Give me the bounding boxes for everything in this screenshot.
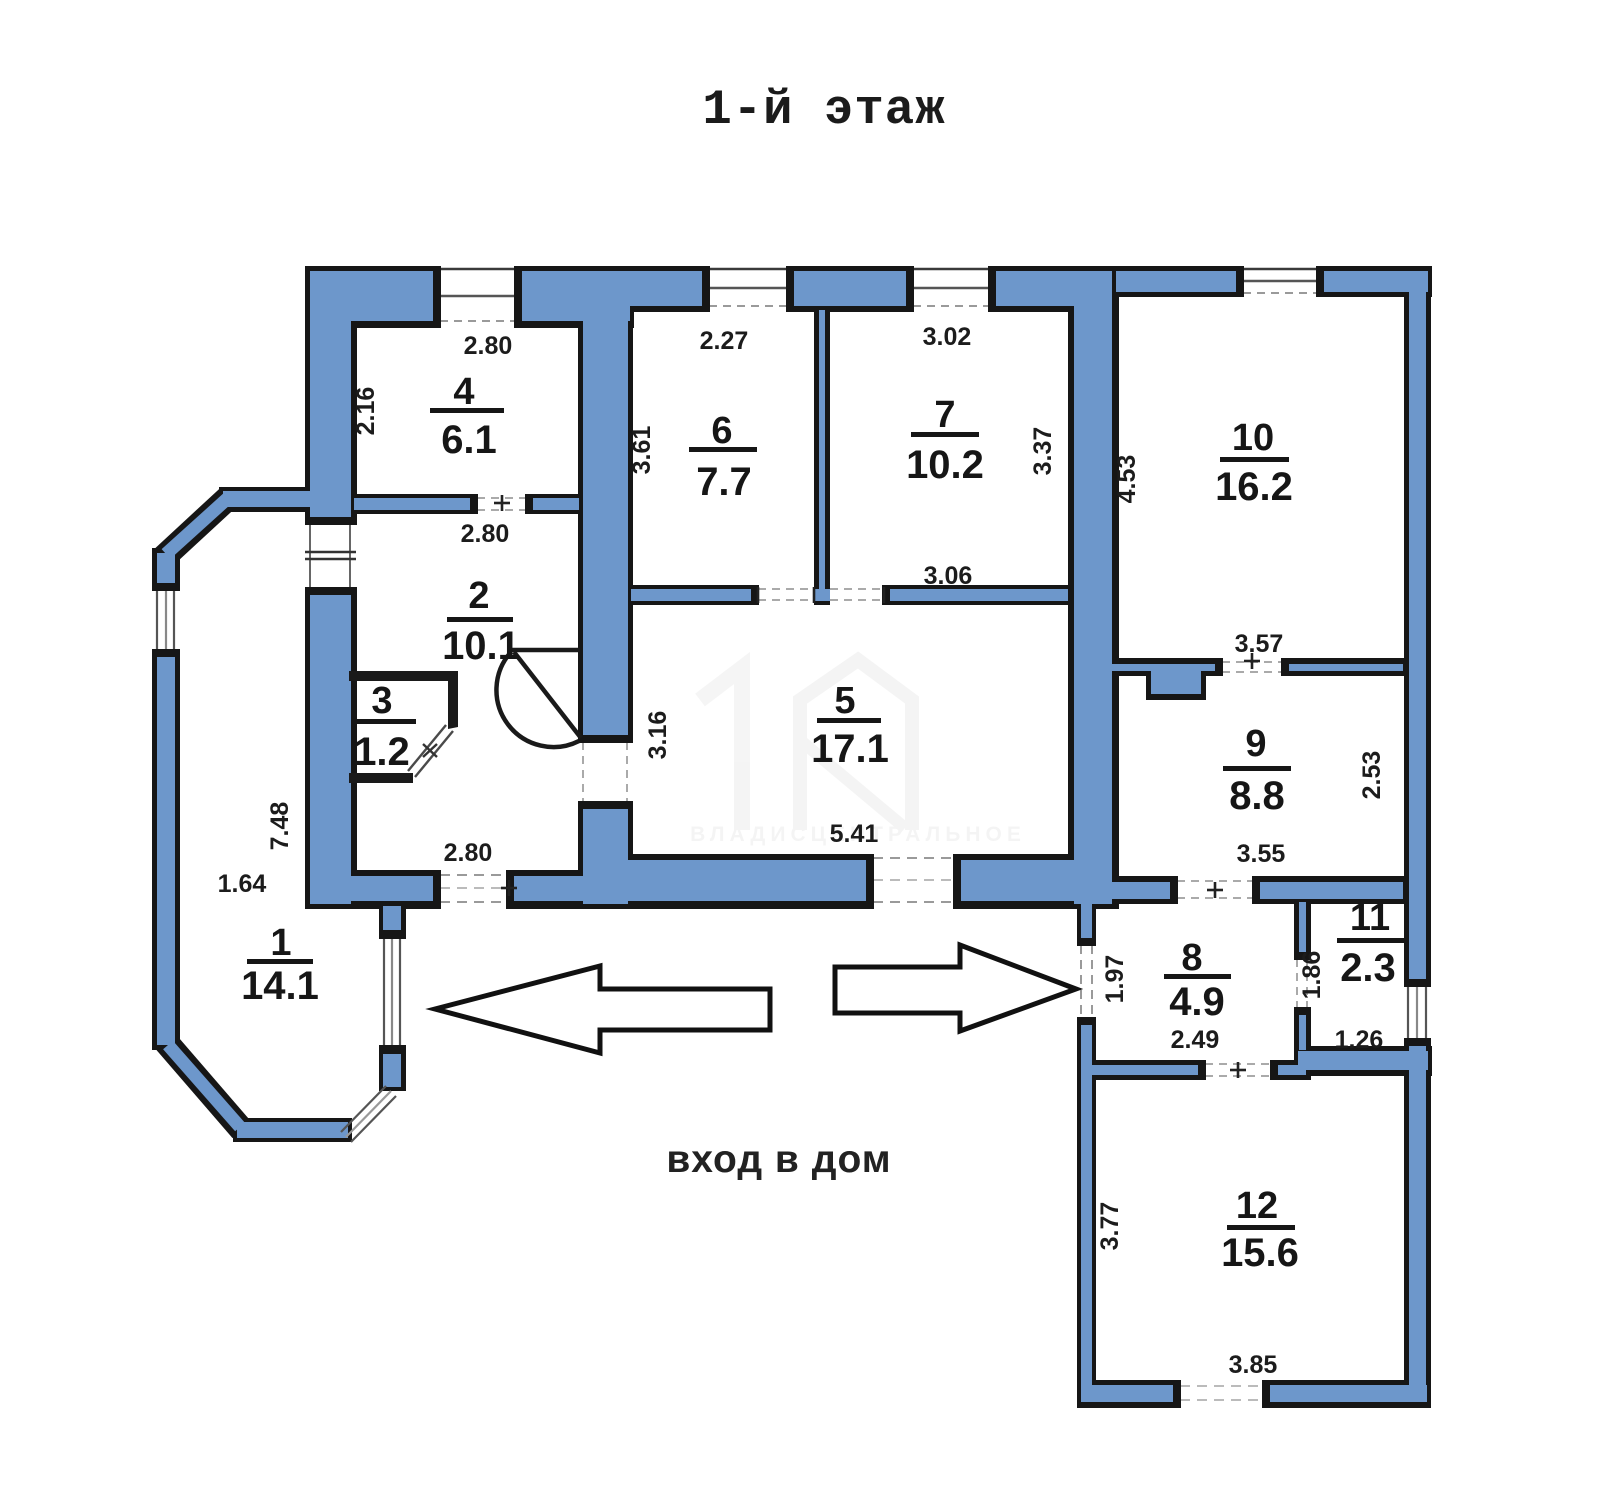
svg-text:2.80: 2.80 xyxy=(444,839,493,867)
svg-text:вход в дом: вход в дом xyxy=(666,1138,891,1181)
svg-text:16.2: 16.2 xyxy=(1215,465,1293,509)
svg-text:3.06: 3.06 xyxy=(924,562,973,590)
svg-text:3.16: 3.16 xyxy=(644,711,672,760)
svg-text:5.41: 5.41 xyxy=(830,820,879,848)
svg-text:2.53: 2.53 xyxy=(1358,751,1386,800)
svg-text:8.8: 8.8 xyxy=(1229,774,1285,818)
svg-text:3.02: 3.02 xyxy=(923,323,972,351)
svg-text:5: 5 xyxy=(834,680,855,722)
svg-text:10.2: 10.2 xyxy=(906,443,984,487)
svg-text:10: 10 xyxy=(1232,417,1274,459)
svg-text:3.37: 3.37 xyxy=(1029,427,1057,476)
svg-text:1.2: 1.2 xyxy=(354,730,410,774)
svg-text:3.61: 3.61 xyxy=(628,426,656,475)
svg-text:11: 11 xyxy=(1350,897,1390,939)
svg-text:6: 6 xyxy=(711,410,732,452)
svg-text:3.85: 3.85 xyxy=(1229,1351,1278,1379)
svg-text:2.80: 2.80 xyxy=(464,332,513,360)
svg-text:1.26: 1.26 xyxy=(1335,1026,1384,1054)
svg-text:1.86: 1.86 xyxy=(1298,951,1326,1000)
svg-text:4: 4 xyxy=(453,371,474,413)
svg-text:3.57: 3.57 xyxy=(1235,630,1284,658)
svg-text:2.27: 2.27 xyxy=(700,327,749,355)
svg-text:8: 8 xyxy=(1181,937,1202,979)
svg-text:17.1: 17.1 xyxy=(811,727,889,771)
svg-text:12: 12 xyxy=(1236,1185,1278,1227)
svg-text:4.53: 4.53 xyxy=(1113,455,1141,504)
svg-text:15.6: 15.6 xyxy=(1221,1231,1299,1275)
svg-text:6.1: 6.1 xyxy=(441,418,497,462)
svg-text:3: 3 xyxy=(371,680,392,722)
svg-text:3.77: 3.77 xyxy=(1096,1202,1124,1251)
svg-text:2.49: 2.49 xyxy=(1171,1026,1220,1054)
svg-text:1.97: 1.97 xyxy=(1101,955,1129,1004)
svg-text:2: 2 xyxy=(468,575,489,617)
svg-text:4.9: 4.9 xyxy=(1169,980,1225,1024)
svg-text:2.80: 2.80 xyxy=(461,520,510,548)
svg-text:2.16: 2.16 xyxy=(352,387,380,436)
svg-text:9: 9 xyxy=(1245,723,1266,765)
svg-text:2.3: 2.3 xyxy=(1340,946,1396,990)
svg-text:1-й этаж: 1-й этаж xyxy=(702,82,945,138)
svg-text:7.7: 7.7 xyxy=(696,460,752,504)
svg-text:14.1: 14.1 xyxy=(241,964,319,1008)
svg-text:7.48: 7.48 xyxy=(266,802,294,851)
svg-text:1: 1 xyxy=(270,922,291,964)
svg-text:1.64: 1.64 xyxy=(218,870,267,898)
svg-text:10.1: 10.1 xyxy=(442,624,520,668)
svg-text:3.55: 3.55 xyxy=(1237,840,1286,868)
svg-text:7: 7 xyxy=(934,394,955,436)
